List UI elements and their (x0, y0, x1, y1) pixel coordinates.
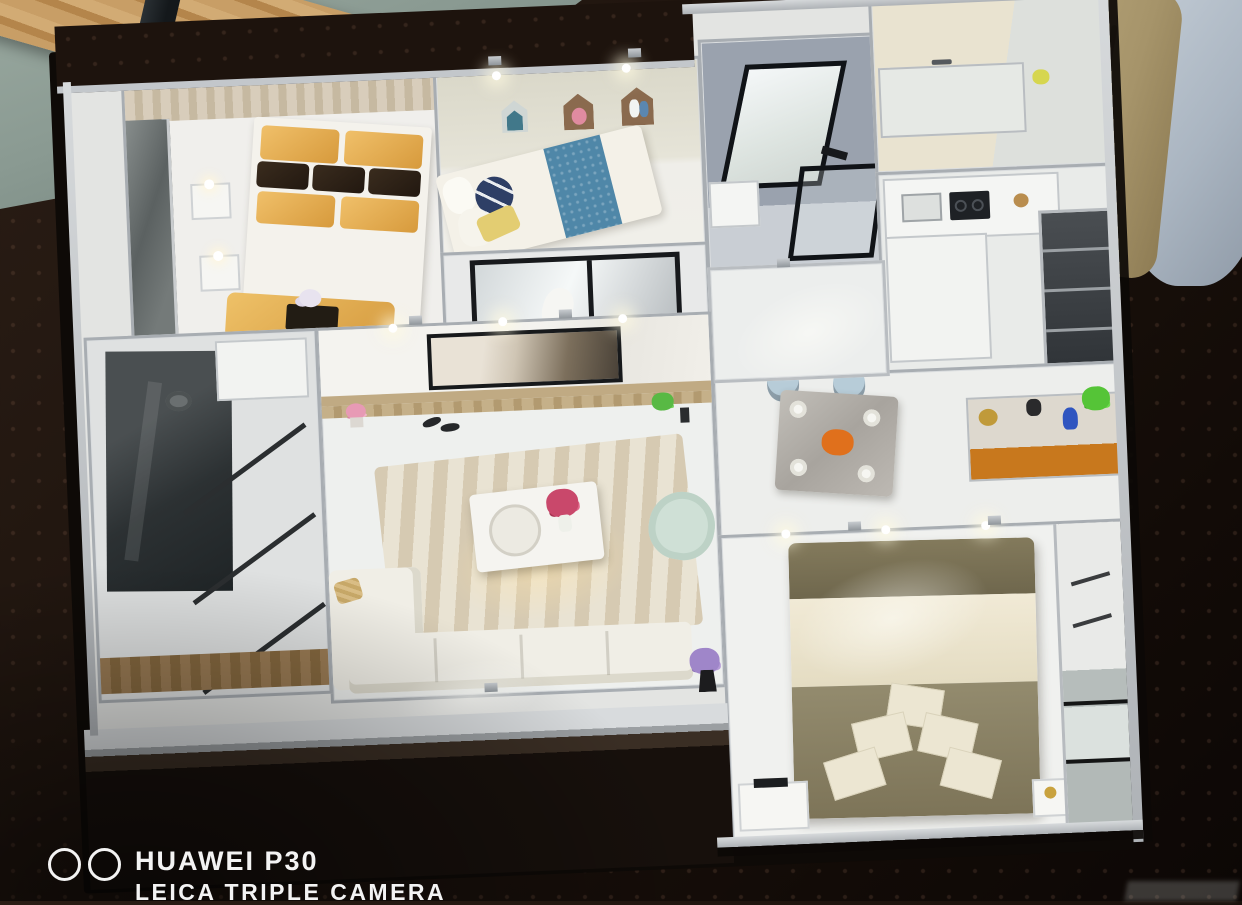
flower-vase (558, 514, 573, 532)
green-plant (651, 392, 674, 411)
bathroom-vanity (215, 337, 309, 401)
dual-lens-circles-icon (48, 848, 121, 886)
watermark-text: HUAWEI P30 LEICA TRIPLE CAMERA (135, 848, 446, 904)
cabinet-frame-line (1043, 246, 1115, 252)
dresser (738, 781, 810, 832)
room-vanity-laundry (868, 0, 1113, 175)
lens-circle-icon (88, 848, 121, 881)
shower-screen (788, 163, 887, 261)
photo-scene: { "image": { "kind": "photograph", "subj… (0, 0, 1242, 901)
cup-and-saucer (863, 409, 881, 427)
wall-stud (777, 258, 790, 268)
cup-and-saucer (857, 465, 875, 483)
camera-watermark: HUAWEI P30 LEICA TRIPLE CAMERA (48, 848, 446, 904)
wardrobe-handle (1071, 571, 1111, 586)
brown-pillow (312, 164, 366, 193)
cooktop (949, 191, 990, 221)
mirror-frame-line (1064, 699, 1128, 706)
gold-plate (978, 409, 998, 427)
round-tray (486, 502, 543, 559)
ceiling-spotlight (881, 525, 890, 534)
cup-and-saucer (789, 400, 807, 418)
flower-pot (350, 417, 363, 428)
gold-pillow (260, 125, 340, 164)
figurine (639, 101, 649, 117)
mirror-frame-line (1066, 757, 1130, 764)
faucet (932, 59, 952, 65)
dark-shower-enclosure (105, 351, 233, 592)
room-upper-bathroom (698, 32, 884, 275)
wall-stud (559, 309, 572, 319)
gold-pillow (256, 191, 336, 228)
small-tv (754, 778, 788, 788)
gold-pillow (340, 196, 420, 233)
wall-stud (628, 48, 641, 58)
washbasin (709, 180, 761, 228)
brown-pillow (368, 168, 422, 197)
cabinet-frame-line (1046, 326, 1118, 332)
kitchen-sink (901, 193, 942, 223)
gold-pillow (344, 130, 424, 169)
table-lamp (213, 251, 223, 261)
orange-centerpiece (821, 428, 855, 456)
wall-stud (409, 316, 422, 326)
wardrobe-handle (1072, 613, 1112, 628)
brown-pillow (256, 161, 310, 190)
blue-vase (1062, 407, 1078, 430)
nightstand (190, 182, 231, 220)
room-gold-bedroom (121, 75, 450, 346)
yellow-accessory (1032, 69, 1050, 85)
burner (955, 200, 967, 212)
marble-counter (878, 62, 1027, 138)
nightstand (199, 254, 240, 292)
watermark-device: HUAWEI P30 (135, 848, 446, 875)
wall-stud (488, 56, 501, 66)
wall-stud (988, 515, 1001, 525)
slipper (440, 422, 460, 433)
gold-lamp (1044, 786, 1056, 798)
wall-stud (848, 521, 861, 531)
blue-bed-runner (543, 135, 622, 239)
mirrored-wardrobe (125, 119, 178, 337)
glass-reflection (124, 381, 162, 561)
ceiling-spotlight (781, 529, 790, 538)
room-kids-bedroom (432, 56, 708, 259)
room-kitchen (875, 162, 1121, 376)
lens-circle-icon (48, 848, 81, 881)
figurine (629, 99, 640, 117)
ceiling-spotlight (622, 64, 631, 73)
sideboard (966, 391, 1121, 481)
slipper (422, 415, 443, 429)
kettle (1026, 399, 1042, 417)
television (427, 326, 623, 390)
dark-vase (680, 407, 690, 422)
table-lamp (204, 179, 214, 189)
cup-and-saucer (789, 458, 807, 476)
bread-item (1013, 193, 1029, 208)
ceiling-spotlight (492, 71, 501, 80)
cabinet-frame-line (1044, 286, 1116, 292)
burner (971, 199, 983, 211)
kitchen-counter (885, 233, 992, 363)
shower-head (166, 391, 192, 411)
kitchen-counter (883, 172, 1061, 241)
green-plant (1081, 386, 1110, 411)
cutoff-watermark (1124, 881, 1240, 901)
dining-table (775, 390, 899, 497)
